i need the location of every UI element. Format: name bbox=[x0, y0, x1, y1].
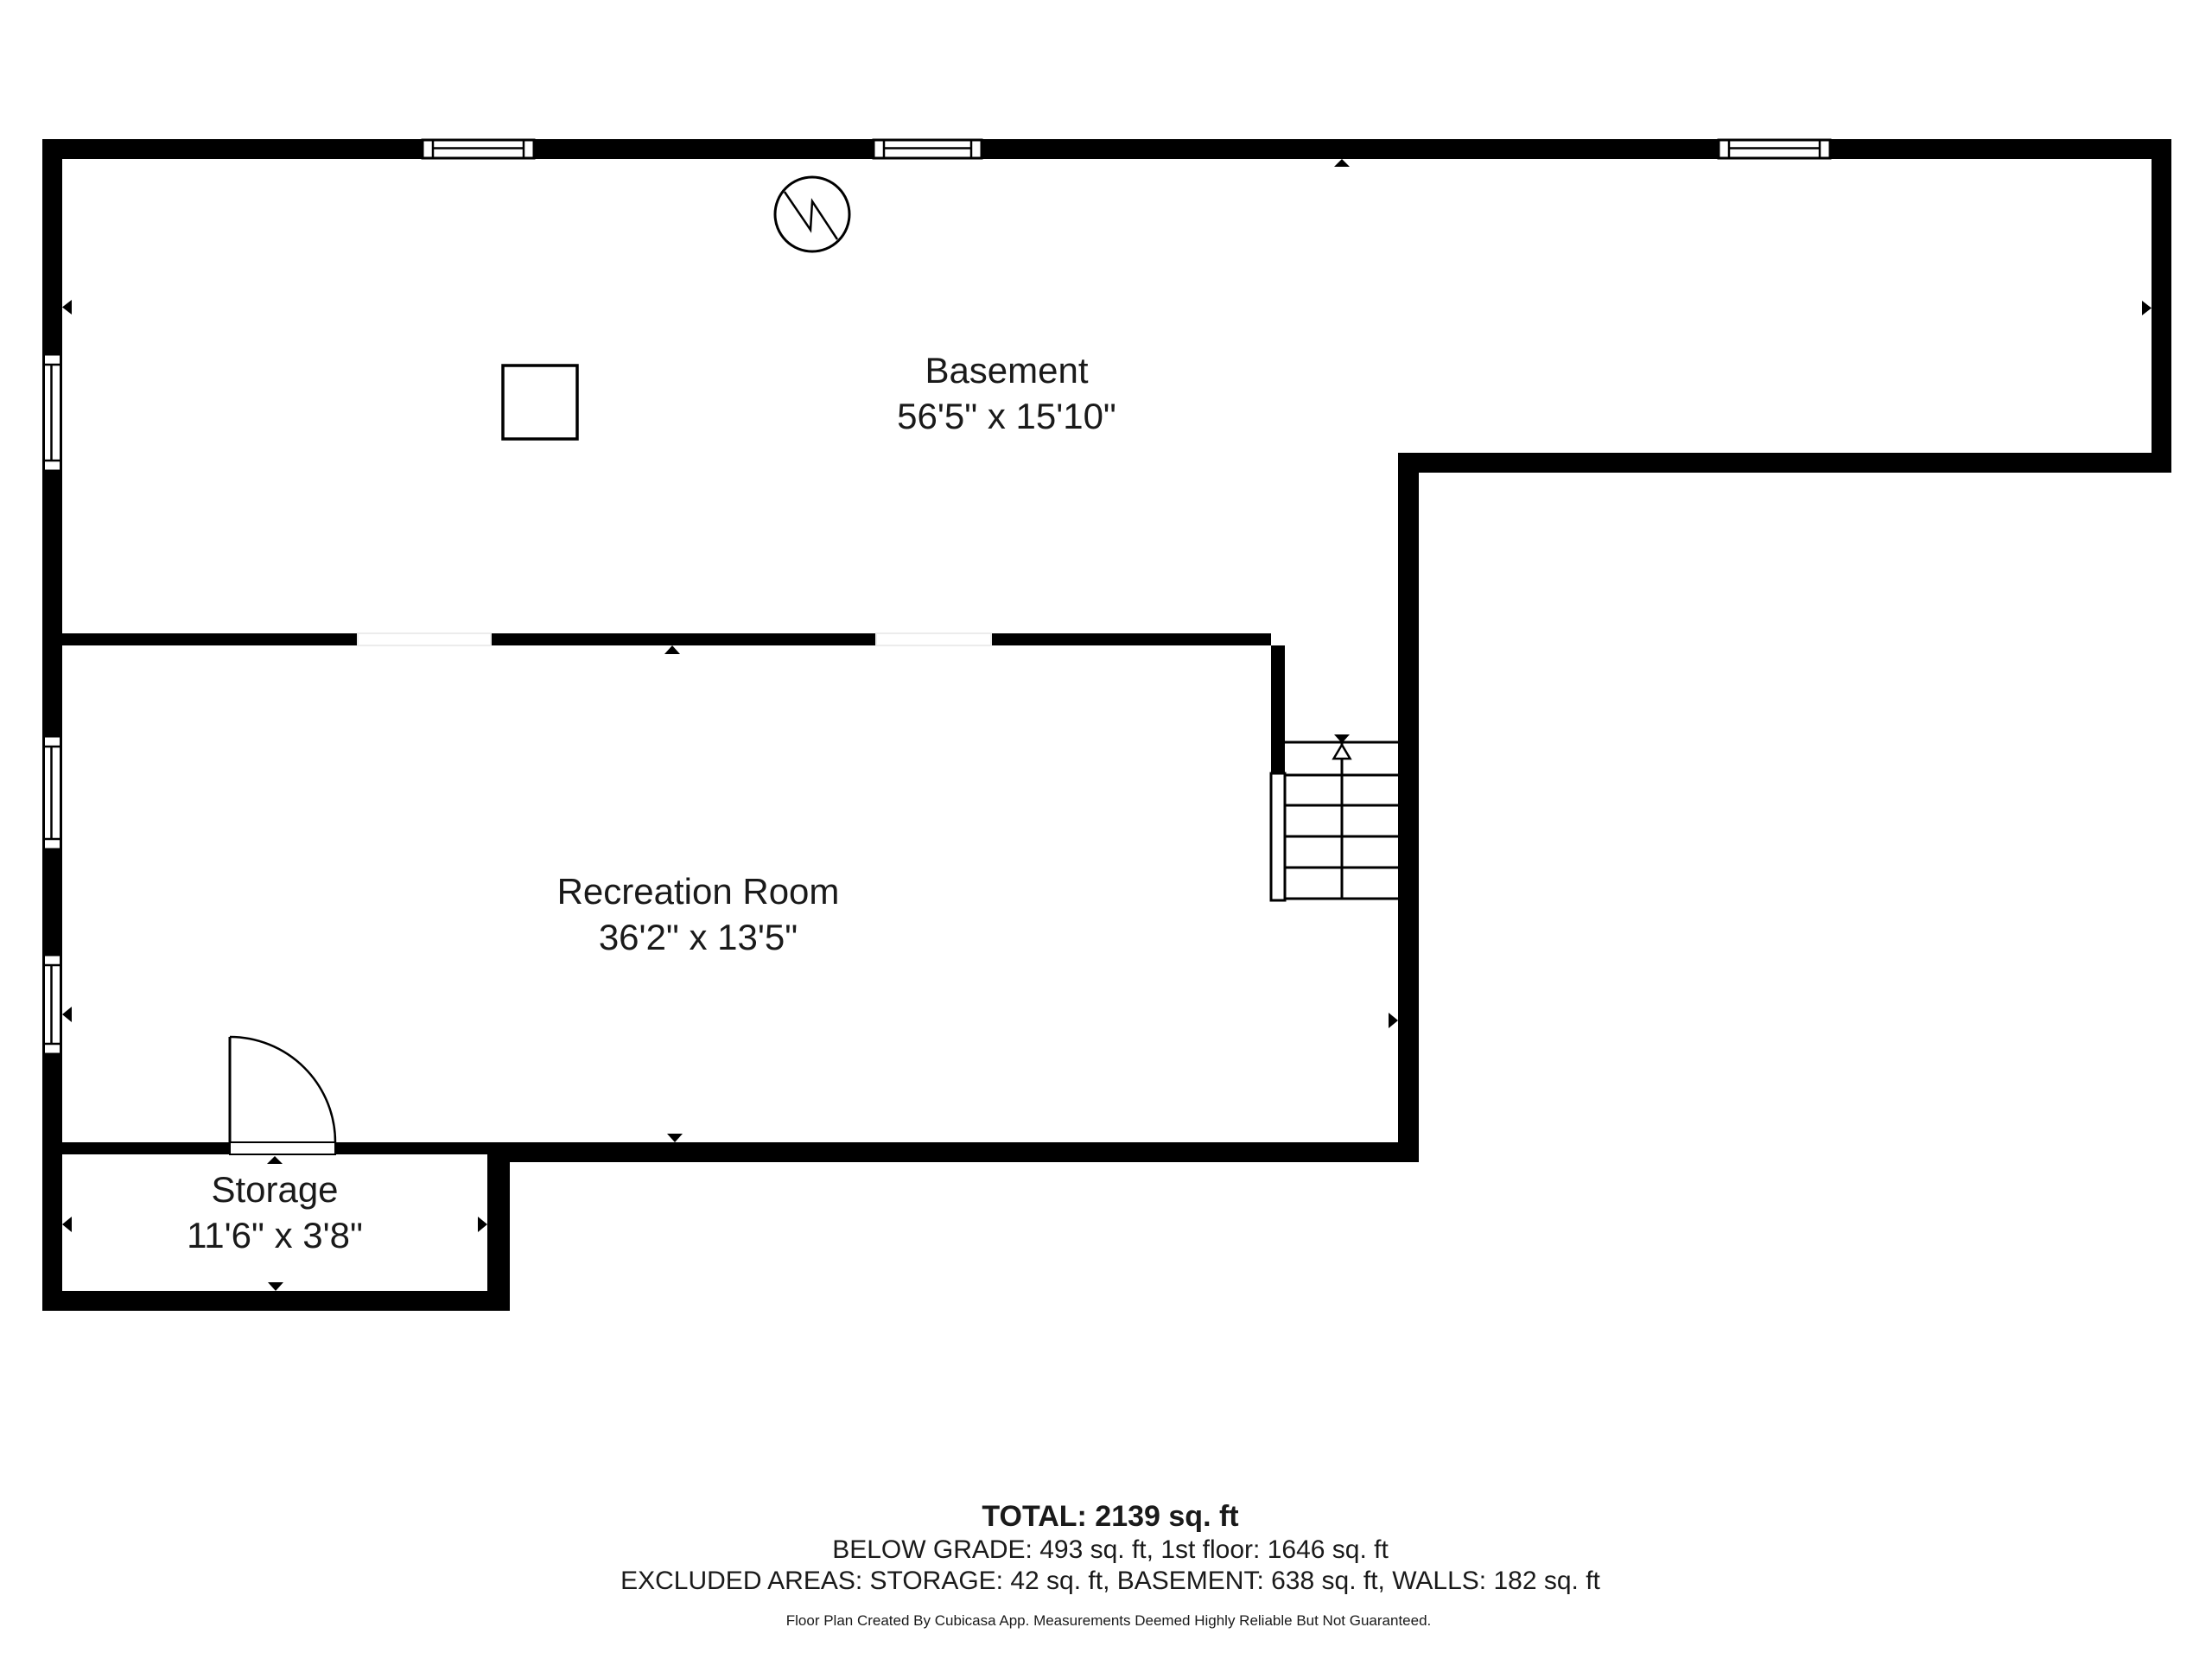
stair-direction-marker bbox=[1334, 734, 1351, 759]
floor-plan-canvas: Basement 56'5" x 15'10" Recreation Room … bbox=[0, 0, 2212, 1659]
below-grade-text: BELOW GRADE: 493 sq. ft, 1st floor: 1646… bbox=[832, 1535, 1389, 1564]
total-area-text: TOTAL: 2139 sq. ft bbox=[982, 1500, 1238, 1533]
extent-arrow-up-icon bbox=[664, 645, 680, 654]
windows bbox=[44, 140, 1831, 1054]
extent-arrow-down-icon bbox=[268, 1282, 283, 1291]
storage-label: Storage bbox=[211, 1169, 338, 1210]
window-icon bbox=[423, 140, 534, 158]
basement-dimensions: 56'5" x 15'10" bbox=[897, 396, 1116, 436]
extent-arrow-up-icon bbox=[267, 1156, 283, 1164]
window-icon bbox=[874, 140, 982, 158]
storage-door bbox=[230, 1037, 335, 1154]
extent-arrow-right-icon bbox=[2142, 301, 2152, 315]
extent-arrow-right-icon bbox=[1389, 1013, 1398, 1028]
extent-arrows bbox=[62, 159, 2152, 1291]
extent-arrow-left-icon bbox=[62, 1007, 72, 1022]
interior-walls bbox=[62, 633, 1285, 773]
window-icon bbox=[44, 955, 61, 1054]
extent-arrow-right-icon bbox=[478, 1217, 487, 1232]
recreation-room-label: Recreation Room bbox=[557, 871, 840, 912]
room-labels: Basement 56'5" x 15'10" Recreation Room … bbox=[187, 350, 1116, 1255]
circle-zigzag-symbol bbox=[775, 177, 849, 251]
floor-plan-page: Basement 56'5" x 15'10" Recreation Room … bbox=[0, 0, 2212, 1659]
excluded-areas-text: EXCLUDED AREAS: STORAGE: 42 sq. ft, BASE… bbox=[620, 1567, 1600, 1595]
window-icon bbox=[1719, 140, 1830, 158]
area-summary: TOTAL: 2139 sq. ft BELOW GRADE: 493 sq. … bbox=[620, 1500, 1600, 1629]
extent-arrow-left-icon bbox=[62, 300, 72, 315]
extent-arrow-down-icon bbox=[667, 1134, 683, 1142]
extent-arrow-up-icon bbox=[1334, 159, 1350, 167]
recreation-room-dimensions: 36'2" x 13'5" bbox=[599, 917, 798, 957]
extent-arrow-left-icon bbox=[62, 1217, 72, 1232]
disclaimer-text: Floor Plan Created By Cubicasa App. Meas… bbox=[786, 1612, 1432, 1629]
column-symbol bbox=[503, 365, 577, 439]
staircase bbox=[1271, 734, 1398, 900]
storage-dimensions: 11'6" x 3'8" bbox=[187, 1215, 363, 1255]
window-icon bbox=[44, 354, 61, 471]
basement-label: Basement bbox=[925, 350, 1088, 391]
exterior-walls bbox=[42, 139, 2171, 1311]
window-icon bbox=[44, 736, 61, 849]
